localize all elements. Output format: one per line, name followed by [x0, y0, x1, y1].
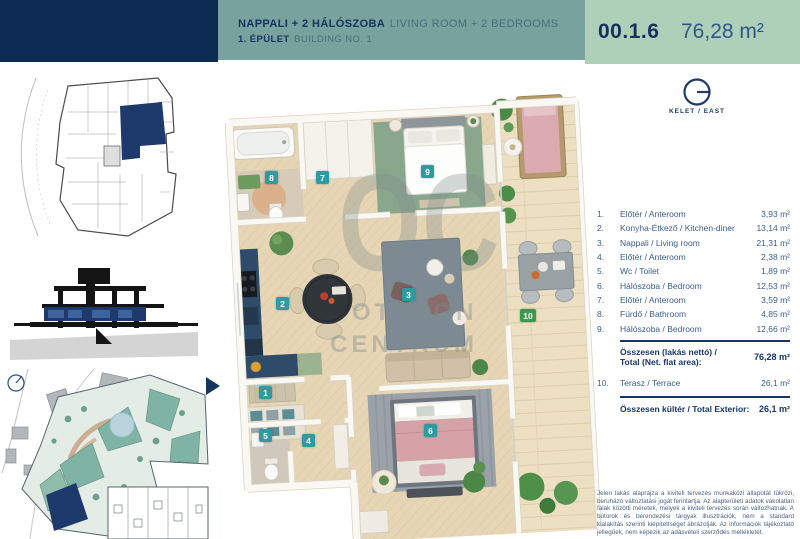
table-row: 2.Konyha-Étkező / Kitchen-diner13,14 m²	[597, 221, 790, 235]
room-badge-2: 2	[276, 297, 289, 310]
apartment-floorplan-render	[215, 69, 605, 539]
room-badge-7: 7	[316, 171, 329, 184]
floorplate-key-plan	[8, 72, 202, 240]
table-row: 6.Hálószoba / Bedroom12,53 m²	[597, 278, 790, 292]
table-row: 5.Wc / Toilet1,89 m²	[597, 264, 790, 278]
compass-east-icon	[682, 77, 712, 107]
net-total-label-en: Total (Net. flat area):	[620, 357, 754, 367]
entrance-arrow-icon	[206, 377, 220, 395]
room-badge-10: 10	[520, 309, 536, 322]
net-total-row: Összesen (lakás nettó) / Total (Net. fla…	[620, 347, 790, 367]
room-badge-4: 4	[302, 434, 315, 447]
table-row: 8.Fürdő / Bathroom4,85 m²	[597, 307, 790, 321]
net-total-value: 76,28 m²	[754, 352, 790, 362]
room-badge-3: 3	[402, 288, 415, 301]
title-english: LIVING ROOM + 2 BEDROOMS	[390, 18, 559, 30]
header-title-band: NAPPALI + 2 HÁLÓSZOBA LIVING ROOM + 2 BE…	[218, 0, 585, 60]
room-badge-1: 1	[259, 386, 272, 399]
unit-id: 00.1.6	[598, 20, 659, 44]
exterior-total-row: Összesen kültér / Total Exterior: 26,1 m…	[620, 404, 790, 414]
terrace-row: 10. Terasz / Terrace 26,1 m²	[597, 376, 790, 390]
compass-label: KELET / EAST	[657, 108, 737, 115]
unit-total-area: 76,28 m²	[681, 20, 764, 44]
table-row: 4.Előtér / Anteroom2,38 m²	[597, 250, 790, 264]
room-area-table: 1.Előtér / Anteroom3,93 m² 2.Konyha-Étke…	[597, 207, 790, 414]
header-navy-block	[0, 0, 218, 62]
exterior-total-value: 26,1 m²	[759, 404, 790, 414]
site-landscape-plan	[0, 369, 210, 539]
room-badge-8: 8	[265, 171, 278, 184]
subtitle-hungarian: 1. ÉPÜLET	[238, 34, 290, 45]
table-row: 1.Előtér / Anteroom3,93 m²	[597, 207, 790, 221]
subtitle-english: BUILDING NO. 1	[294, 34, 372, 45]
header-text: NAPPALI + 2 HÁLÓSZOBA LIVING ROOM + 2 BE…	[238, 16, 559, 47]
room-badge-9: 9	[421, 165, 434, 178]
title-hungarian: NAPPALI + 2 HÁLÓSZOBA	[238, 18, 385, 30]
building-section-drawing	[8, 252, 202, 374]
room-badge-5: 5	[259, 429, 272, 442]
floorplan-brochure-page: NAPPALI + 2 HÁLÓSZOBA LIVING ROOM + 2 BE…	[0, 0, 800, 539]
table-row: 3.Nappali / Living room21,31 m²	[597, 236, 790, 250]
table-divider	[620, 340, 790, 342]
table-row: 9.Hálószoba / Bedroom12,66 m²	[597, 321, 790, 335]
table-row: 7.Előtér / Anteroom3,59 m²	[597, 293, 790, 307]
exterior-total-label: Összesen kültér / Total Exterior:	[620, 404, 759, 414]
room-badge-6: 6	[424, 424, 437, 437]
legal-disclaimer: Jelen lakás alaprajza a kiviteli tervezé…	[597, 490, 794, 536]
net-total-label-hu: Összesen (lakás nettó) /	[620, 347, 754, 357]
table-divider	[620, 396, 790, 398]
